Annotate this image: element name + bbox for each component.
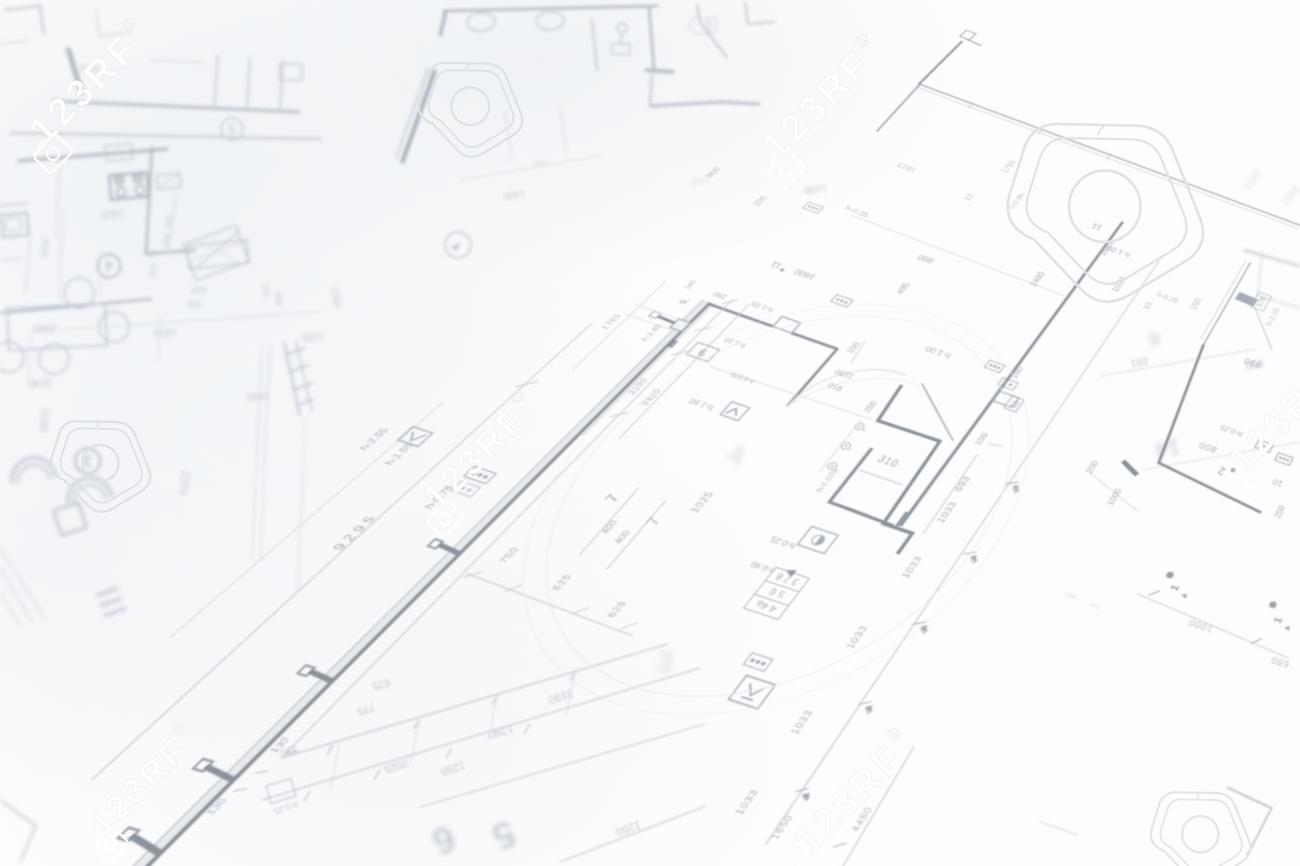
svg-text:123RF®: 123RF®	[414, 384, 548, 518]
svg-text:123RF®: 123RF®	[785, 720, 927, 862]
svg-text:123RF®: 123RF®	[20, 10, 162, 152]
svg-text:123RF®: 123RF®	[82, 717, 209, 844]
svg-text:123RF®: 123RF®	[753, 26, 895, 168]
svg-text:123RF®: 123RF®	[1220, 346, 1300, 480]
